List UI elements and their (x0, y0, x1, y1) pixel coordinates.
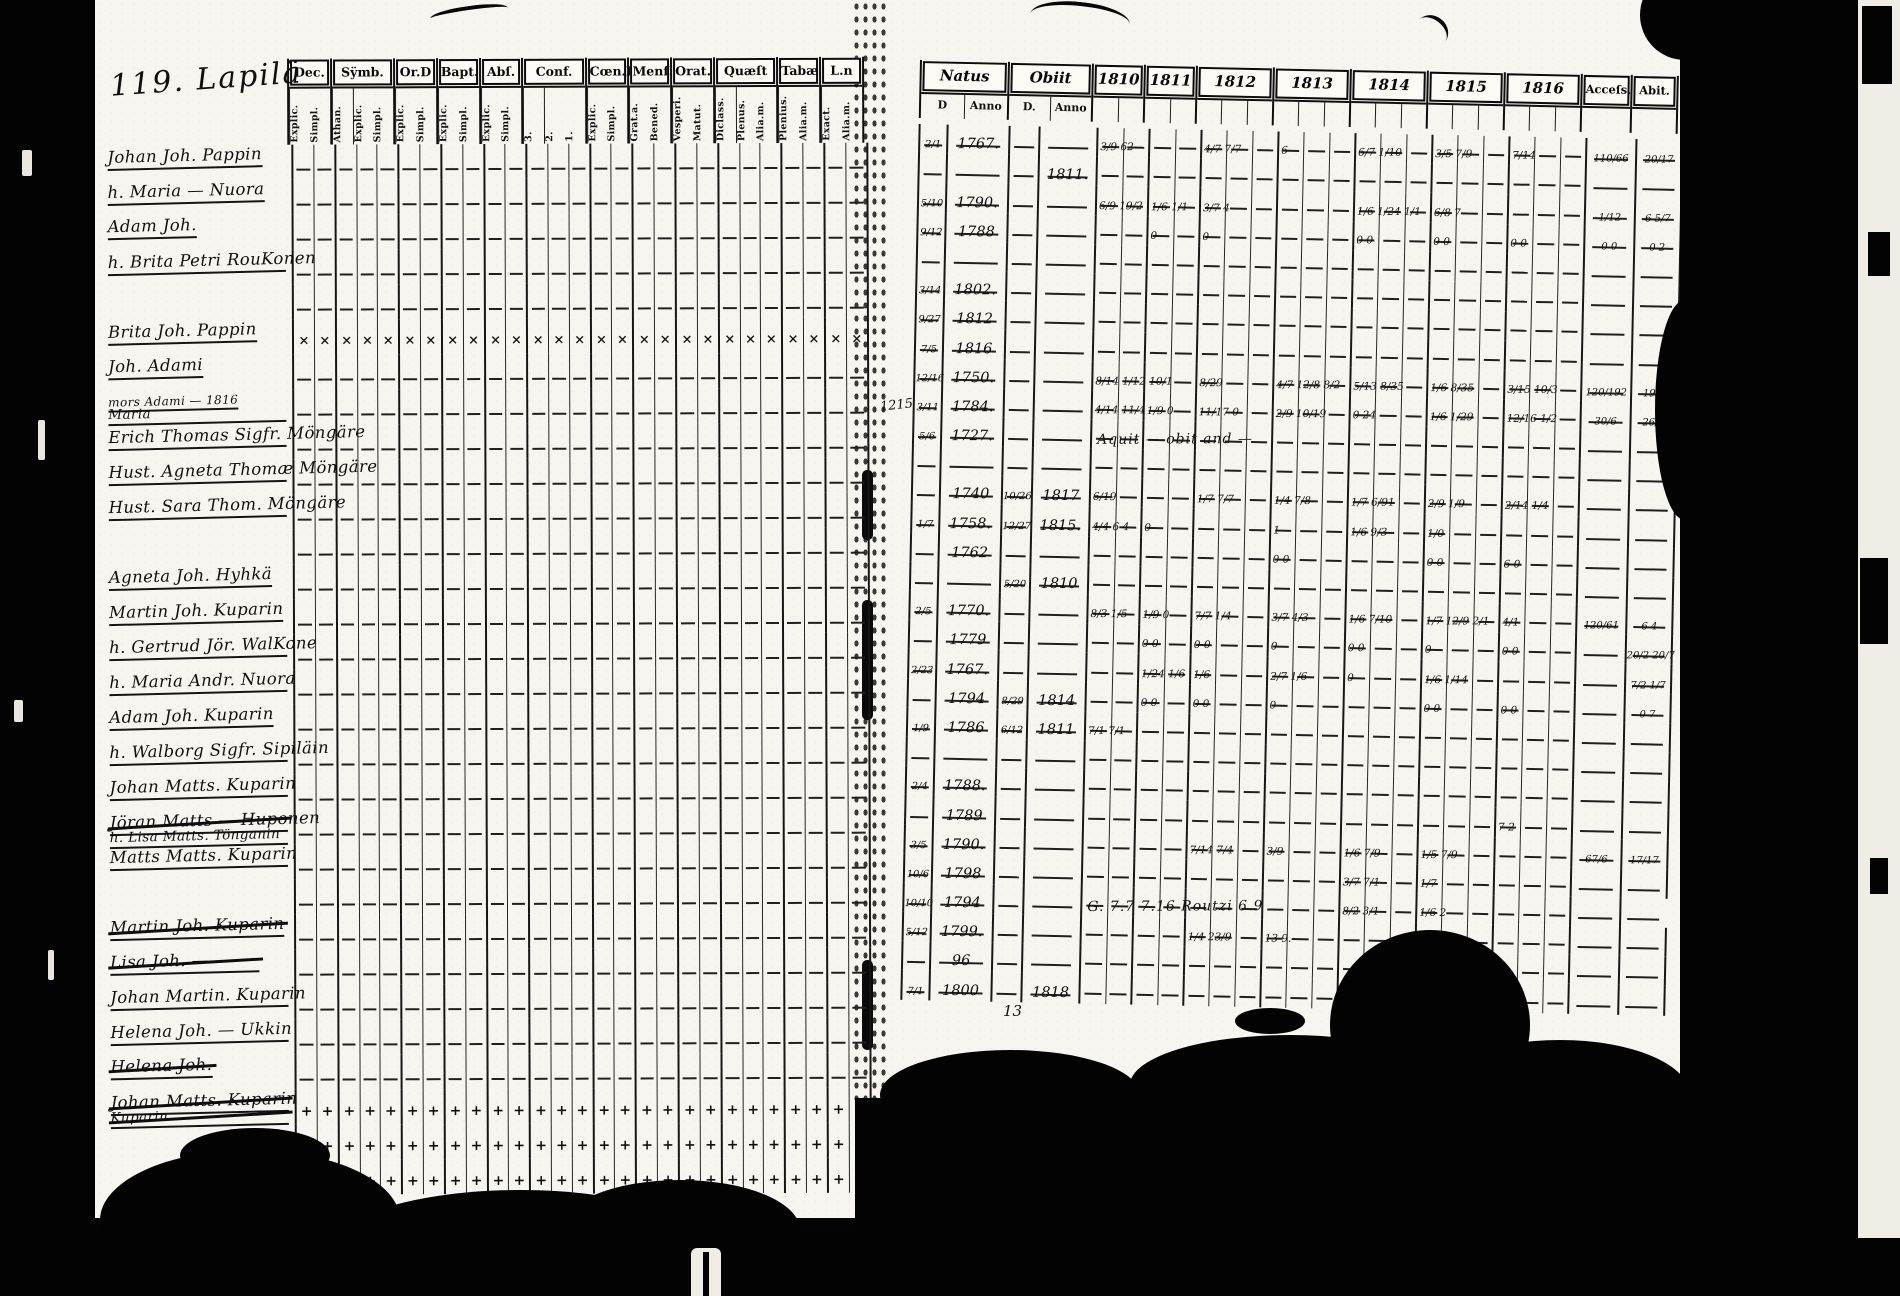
row-mark (704, 1007, 718, 1009)
grid-group-cell (526, 249, 589, 284)
year-sub-cell (1275, 336, 1301, 366)
grid-sub-cell (442, 179, 463, 214)
year-label: 1814 (1352, 70, 1426, 102)
grid-sub-cell (550, 564, 571, 599)
grid-sub-cell: + (764, 1158, 784, 1193)
obiit-day: 5/20 (999, 564, 1030, 594)
year-sub-cell (1524, 691, 1550, 721)
margin-mark (1870, 858, 1888, 894)
row-mark (1550, 856, 1567, 858)
sub-d: D (921, 94, 965, 119)
year-entry: 1/24 1/6 (1141, 668, 1185, 680)
row-mark (362, 693, 375, 695)
row-line (1012, 234, 1032, 236)
row-mark (766, 692, 779, 694)
year-sub-cell (1468, 865, 1493, 895)
row-mark (680, 272, 694, 274)
row-mark (533, 798, 546, 800)
row-mark: + (598, 1104, 610, 1118)
grid-group-cell (529, 984, 592, 1019)
natus-anno-value: 1790. (934, 837, 994, 853)
row-mark (850, 447, 864, 449)
grid-group-cell (527, 459, 590, 494)
grid-sub-cell (548, 144, 569, 179)
row-mark (425, 588, 439, 590)
year-subcells (1141, 537, 1192, 567)
year-subtick (1401, 104, 1426, 129)
year-sub-cell (1477, 428, 1502, 458)
row-mark (1499, 884, 1516, 886)
row-mark (850, 272, 864, 274)
row-mark (1147, 497, 1164, 499)
natus-day (901, 941, 930, 971)
row-mark (1526, 797, 1543, 799)
year-sub-cell (1137, 771, 1163, 801)
year-sub-cell (1520, 866, 1546, 896)
grid-sub-cell (678, 493, 699, 528)
year-sub-cell (1458, 164, 1484, 194)
grid-sub-cell (700, 773, 720, 808)
row-line (1635, 568, 1667, 571)
grid-sub-cell (698, 283, 718, 318)
grid-sub-cell (486, 459, 507, 494)
row-mark (788, 832, 802, 834)
year-subtick (1428, 105, 1454, 130)
year-sub-cell (1217, 627, 1243, 657)
year-cell-1810: 8/3 1/5 (1086, 595, 1139, 625)
year-cell-1810 (1094, 244, 1147, 274)
obiit-anno (1027, 652, 1086, 682)
obiit-day (1003, 389, 1034, 419)
row-mark (405, 763, 419, 765)
row-mark (404, 658, 418, 660)
grid-group-cell (782, 703, 825, 738)
row-mark: + (768, 1138, 780, 1152)
row-mark (831, 762, 845, 764)
grid-sub-cell (550, 529, 571, 564)
year-cell-1812: 0 0 (1190, 626, 1268, 657)
abiit-cell-value: 0 7 (1625, 709, 1669, 720)
row-mark (1407, 328, 1424, 330)
natus-anno-value: 1798 (933, 866, 993, 882)
row-mark (1510, 359, 1527, 361)
year-sub-cell (1381, 163, 1407, 193)
row-mark (1523, 914, 1540, 916)
year-sub-cell (1395, 689, 1420, 719)
row-line (1009, 380, 1029, 382)
row-mark (1356, 327, 1373, 329)
year-cell-1812 (1185, 859, 1263, 890)
row-line (1010, 350, 1030, 352)
obiit-day-value: 6/12 (998, 725, 1026, 736)
grid-sub-cell (422, 599, 442, 634)
scan-speck (14, 700, 23, 722)
year-sub-cell (1398, 543, 1423, 573)
abiit-cell: 6 4 (1625, 606, 1674, 636)
grid-group-cell (335, 494, 398, 529)
person-name: Matts Matts. Kuparin (110, 843, 289, 872)
grid-sub-cell (549, 389, 570, 424)
abiit-cell (1621, 781, 1670, 811)
row-mark (299, 974, 313, 976)
grid-group-cell (400, 949, 443, 984)
row-mark (659, 447, 673, 449)
row-mark (1240, 966, 1257, 968)
row-mark (361, 448, 374, 450)
year-subcells (1495, 866, 1571, 897)
row-mark (786, 272, 800, 274)
grid-sub-cell (444, 739, 465, 774)
year-subcells (1143, 450, 1194, 480)
row-mark (488, 238, 502, 240)
year-cell-1813 (1270, 452, 1348, 483)
grid-sub-cell (827, 528, 848, 563)
grid-sub-cell (380, 739, 400, 774)
row-mark: + (747, 1103, 759, 1117)
grid-group-cell (484, 424, 527, 459)
grid-sub-cell (700, 913, 720, 948)
year-sub-cell (1526, 575, 1552, 605)
year-cell-1814: 1/6 9/3 (1346, 512, 1424, 543)
obiit-day (992, 885, 1023, 915)
grid-group-cell: ×× (398, 319, 441, 354)
row-mark (809, 762, 823, 764)
grid-sub-cell (339, 1054, 360, 1089)
obiit-anno (1038, 126, 1097, 156)
grid-sub-cell (764, 948, 784, 983)
year-sub-cell (1449, 573, 1475, 603)
year-cell-1811 (1131, 946, 1184, 976)
year-sub-cell (1509, 195, 1535, 225)
obiit-anno (1033, 360, 1092, 390)
grid-sub-cell (316, 565, 336, 600)
row-mark (594, 168, 608, 170)
row-mark: + (577, 1174, 589, 1188)
row-mark (1480, 533, 1497, 535)
grid-group-cell (781, 388, 824, 423)
grid-group-cell (335, 389, 398, 424)
row-mark (682, 797, 696, 799)
grid-sub-cell (401, 529, 422, 564)
grid-sub-cell (784, 493, 805, 528)
grid-sub-cell (550, 704, 571, 739)
year-subcells (1149, 158, 1200, 188)
row-line (921, 261, 940, 263)
year-sub-cell (1560, 167, 1585, 197)
grid-sub-cell (742, 738, 763, 773)
year-sub-cell (1494, 895, 1520, 925)
grid-sub-cell (847, 388, 867, 423)
header-access: Acceſs. (1580, 74, 1631, 133)
grid-group-cell (484, 389, 527, 424)
row-line (1043, 380, 1083, 383)
grid-group-cell (783, 843, 826, 878)
year-entry: 1/4 23/9 (1188, 931, 1232, 943)
year-sub-cell (1117, 449, 1142, 479)
row-mark (531, 273, 544, 275)
grid-sub-cell (378, 389, 398, 424)
row-mark (1330, 326, 1347, 328)
natus-anno: 1794 (934, 679, 997, 709)
obiit-anno (1025, 768, 1084, 798)
natus-day-value: 10/6 (905, 869, 931, 880)
year-entry: 6 0 (1504, 558, 1521, 570)
grid-group-cell (823, 213, 868, 248)
grid-sub-cell (445, 949, 466, 984)
grid-sub-cell (296, 880, 317, 915)
row-mark (1354, 443, 1371, 445)
grid-sub-cell (317, 845, 337, 880)
grid-sub-cell (509, 984, 529, 1019)
year-subticks (1145, 97, 1196, 124)
grid-group-cell (442, 634, 485, 669)
year-sub-cell (1277, 248, 1303, 278)
grid-sub-cell: + (552, 1089, 573, 1124)
row-line (996, 992, 1016, 994)
natus-anno-value: 96 (931, 953, 991, 969)
grid-sub-cell (315, 425, 335, 460)
grid-group-cell (674, 143, 717, 178)
grid-sub-cell (359, 844, 380, 879)
row-mark (533, 763, 546, 765)
row-mark (764, 272, 777, 274)
year-entry: 1/9 0 (1142, 609, 1169, 621)
year-sub-cell (1354, 250, 1380, 280)
row-mark (1461, 212, 1478, 214)
year-sub-cell (1375, 455, 1401, 485)
obiit-day (1007, 155, 1038, 185)
row-mark (512, 868, 526, 870)
year-sub-cell (1525, 633, 1551, 663)
ledger-row: Matts Matts. Kuparin (106, 843, 871, 881)
grid-sub-cell (657, 878, 677, 913)
grid-sub-cell (636, 773, 657, 808)
row-mark (383, 693, 396, 695)
year-entry: 7/14 (1512, 150, 1536, 162)
row-line (1577, 975, 1612, 978)
year-sub-cell (1172, 304, 1197, 334)
grid-sub-cell (444, 669, 465, 704)
row-line (1001, 759, 1021, 761)
year-subtick (1118, 98, 1143, 123)
row-mark (446, 448, 460, 450)
column-sublabel: Simpl. (459, 88, 479, 144)
grid-sub-cell (422, 564, 442, 599)
row-mark (405, 728, 419, 730)
row-mark (491, 903, 505, 905)
column-group-L.n: L.nExact.Alia.m. (819, 57, 864, 143)
row-mark (1537, 272, 1554, 274)
row-line (1032, 906, 1072, 909)
grid-sub-cell (337, 424, 358, 459)
year-cell-1810 (1083, 741, 1136, 771)
row-mark (1243, 820, 1260, 822)
year-sub-cell (1175, 159, 1200, 189)
row-mark (424, 203, 438, 205)
row-mark (511, 728, 525, 730)
row-mark (448, 1008, 462, 1010)
grid-sub-cell (699, 598, 719, 633)
grid-sub-cell (848, 703, 868, 738)
grid-sub-cell: + (701, 1088, 721, 1123)
row-mark: + (598, 1139, 610, 1153)
row-mark (1379, 444, 1396, 446)
grid-group-cell (677, 878, 720, 913)
year-sub-cell (1080, 974, 1106, 1004)
year-cell-1813 (1275, 219, 1353, 250)
grid-group-cell (784, 1053, 827, 1088)
year-subcells (1429, 339, 1505, 370)
grid-sub-cell (442, 144, 463, 179)
row-mark (702, 517, 716, 519)
grid-sub-cell (486, 389, 507, 424)
grid-sub-cell: + (297, 1090, 318, 1125)
access-cell-value: 110/66 (1587, 154, 1635, 165)
year-cell-1816 (1505, 253, 1583, 284)
row-mark (363, 903, 376, 905)
row-mark (510, 378, 524, 380)
grid-group-cell (719, 633, 782, 668)
year-sub-cell (1166, 567, 1191, 597)
row-line (1577, 946, 1612, 949)
obiit-anno-value: 1811 (1028, 722, 1084, 738)
grid-sub-cell (402, 1054, 423, 1089)
year-sub-cell (1149, 158, 1175, 188)
row-mark (468, 728, 482, 730)
grid-sub-cell (826, 248, 847, 283)
year-cell-1810: 4/4 6 4 (1088, 507, 1141, 537)
grid-sub-cell (847, 353, 867, 388)
obiit-day (990, 972, 1021, 1002)
year-sub-cell (1323, 454, 1348, 484)
year-subcells (1344, 717, 1420, 748)
year-entry: 7/7 1/4 (1194, 610, 1231, 622)
grid-sub-cell: + (807, 1123, 827, 1158)
row-mark (1166, 819, 1183, 821)
margin-mark (1860, 558, 1888, 644)
year-sub-cell (1289, 862, 1315, 892)
row-mark: + (556, 1104, 568, 1118)
year-sub-cell (1532, 283, 1558, 313)
row-mark: × (298, 334, 309, 349)
grid-group-cell (334, 144, 397, 179)
grid-sub-cell (508, 914, 528, 949)
row-mark (1113, 847, 1130, 849)
row-mark (405, 868, 419, 870)
row-line (913, 640, 932, 642)
grid-group-cell (634, 843, 677, 878)
grid-sub-cell (422, 669, 442, 704)
grid-sub-cell (487, 774, 508, 809)
row-mark (831, 832, 845, 834)
year-subcells (1499, 662, 1575, 693)
row-mark (554, 798, 567, 800)
row-mark: + (577, 1104, 589, 1118)
year-sub-cell (1116, 478, 1141, 508)
year-subtick (1453, 105, 1479, 130)
natus-day (906, 678, 935, 708)
row-mark (510, 448, 524, 450)
grid-group-cell (781, 423, 824, 458)
grid-group-cell (590, 563, 633, 598)
row-mark (425, 518, 439, 520)
year-label: 1813 (1275, 68, 1349, 100)
row-mark (490, 763, 504, 765)
abiit-cell-value: 17/17 (1622, 855, 1666, 866)
row-mark (1227, 353, 1244, 355)
row-mark (808, 517, 822, 519)
grid-sub-cell (549, 179, 570, 214)
row-line (947, 583, 990, 586)
year-sub-cell (1172, 275, 1197, 305)
year-cell-1810 (1083, 770, 1136, 800)
row-mark (1119, 555, 1136, 557)
year-sub-cell (1454, 340, 1480, 370)
column-sublabel: Diclass. (715, 87, 736, 143)
year-sub-cell (1158, 946, 1183, 976)
grid-sub-cell (378, 354, 398, 389)
abiit-cell: 0 2 (1633, 227, 1682, 257)
grid-sub-cell: × (741, 318, 762, 353)
natus-day: 9/27 (914, 299, 943, 329)
row-mark (1428, 591, 1445, 593)
grid-sub-cell (678, 598, 699, 633)
obiit-anno (1034, 331, 1093, 361)
grid-sub-cell (508, 739, 528, 774)
grid-sub-cell (402, 879, 423, 914)
row-mark (404, 483, 418, 485)
grid-sub-cell (379, 424, 399, 459)
grid-group-cell (528, 704, 591, 739)
grid-sub-cell: + (446, 1159, 467, 1194)
grid-sub-cell (338, 774, 359, 809)
row-mark (701, 377, 715, 379)
year-cell-1813 (1276, 161, 1354, 192)
row-mark (381, 273, 394, 275)
grid-sub-cell: + (594, 1124, 615, 1159)
grid-sub-cell (593, 704, 614, 739)
row-mark (639, 692, 653, 694)
grid-sub-cell (508, 844, 528, 879)
natus-day: 9/12 (916, 212, 945, 242)
year-sub-cell (1401, 397, 1426, 427)
row-mark (405, 938, 419, 940)
obiit-anno: 1811. (1037, 156, 1096, 186)
row-mark (703, 727, 717, 729)
grid-sub-cell (679, 773, 700, 808)
row-mark (512, 1078, 526, 1080)
row-mark (1217, 820, 1234, 822)
year-sub-cell (1267, 715, 1293, 745)
year-cell-1814: 1/7 6/91 (1347, 483, 1425, 514)
row-mark (1479, 563, 1496, 565)
natus-anno-value: 1800 (930, 983, 990, 999)
row-mark (491, 1043, 505, 1045)
row-mark (382, 483, 395, 485)
obiit-day (1006, 243, 1037, 273)
row-mark (682, 832, 696, 834)
row-mark (660, 867, 674, 869)
row-mark (1305, 296, 1322, 298)
row-mark (445, 203, 459, 205)
year-subtick (1222, 100, 1248, 125)
header-group-obiit: ObiitD.Anno (1007, 62, 1092, 122)
year-cell-1810: 4/14 11/4 (1091, 390, 1144, 420)
year-sub-cell (1082, 916, 1108, 946)
row-mark (1229, 265, 1246, 267)
year-sub-cell (1326, 308, 1351, 338)
year-cell-1814 (1351, 279, 1429, 310)
